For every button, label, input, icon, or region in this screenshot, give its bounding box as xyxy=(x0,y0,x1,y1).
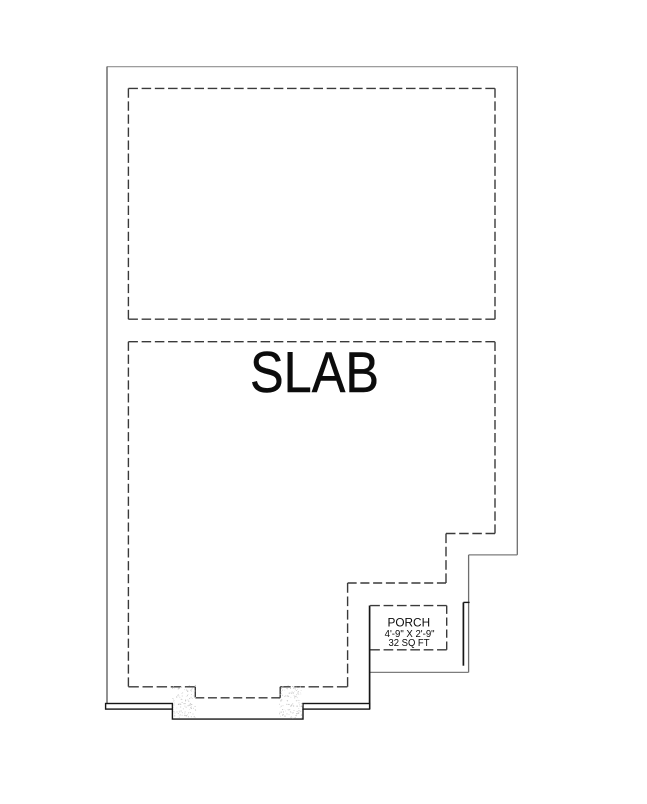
svg-text:PORCH: PORCH xyxy=(387,615,430,629)
svg-text:SLAB: SLAB xyxy=(250,341,379,405)
svg-text:32 SQ FT: 32 SQ FT xyxy=(389,638,430,649)
